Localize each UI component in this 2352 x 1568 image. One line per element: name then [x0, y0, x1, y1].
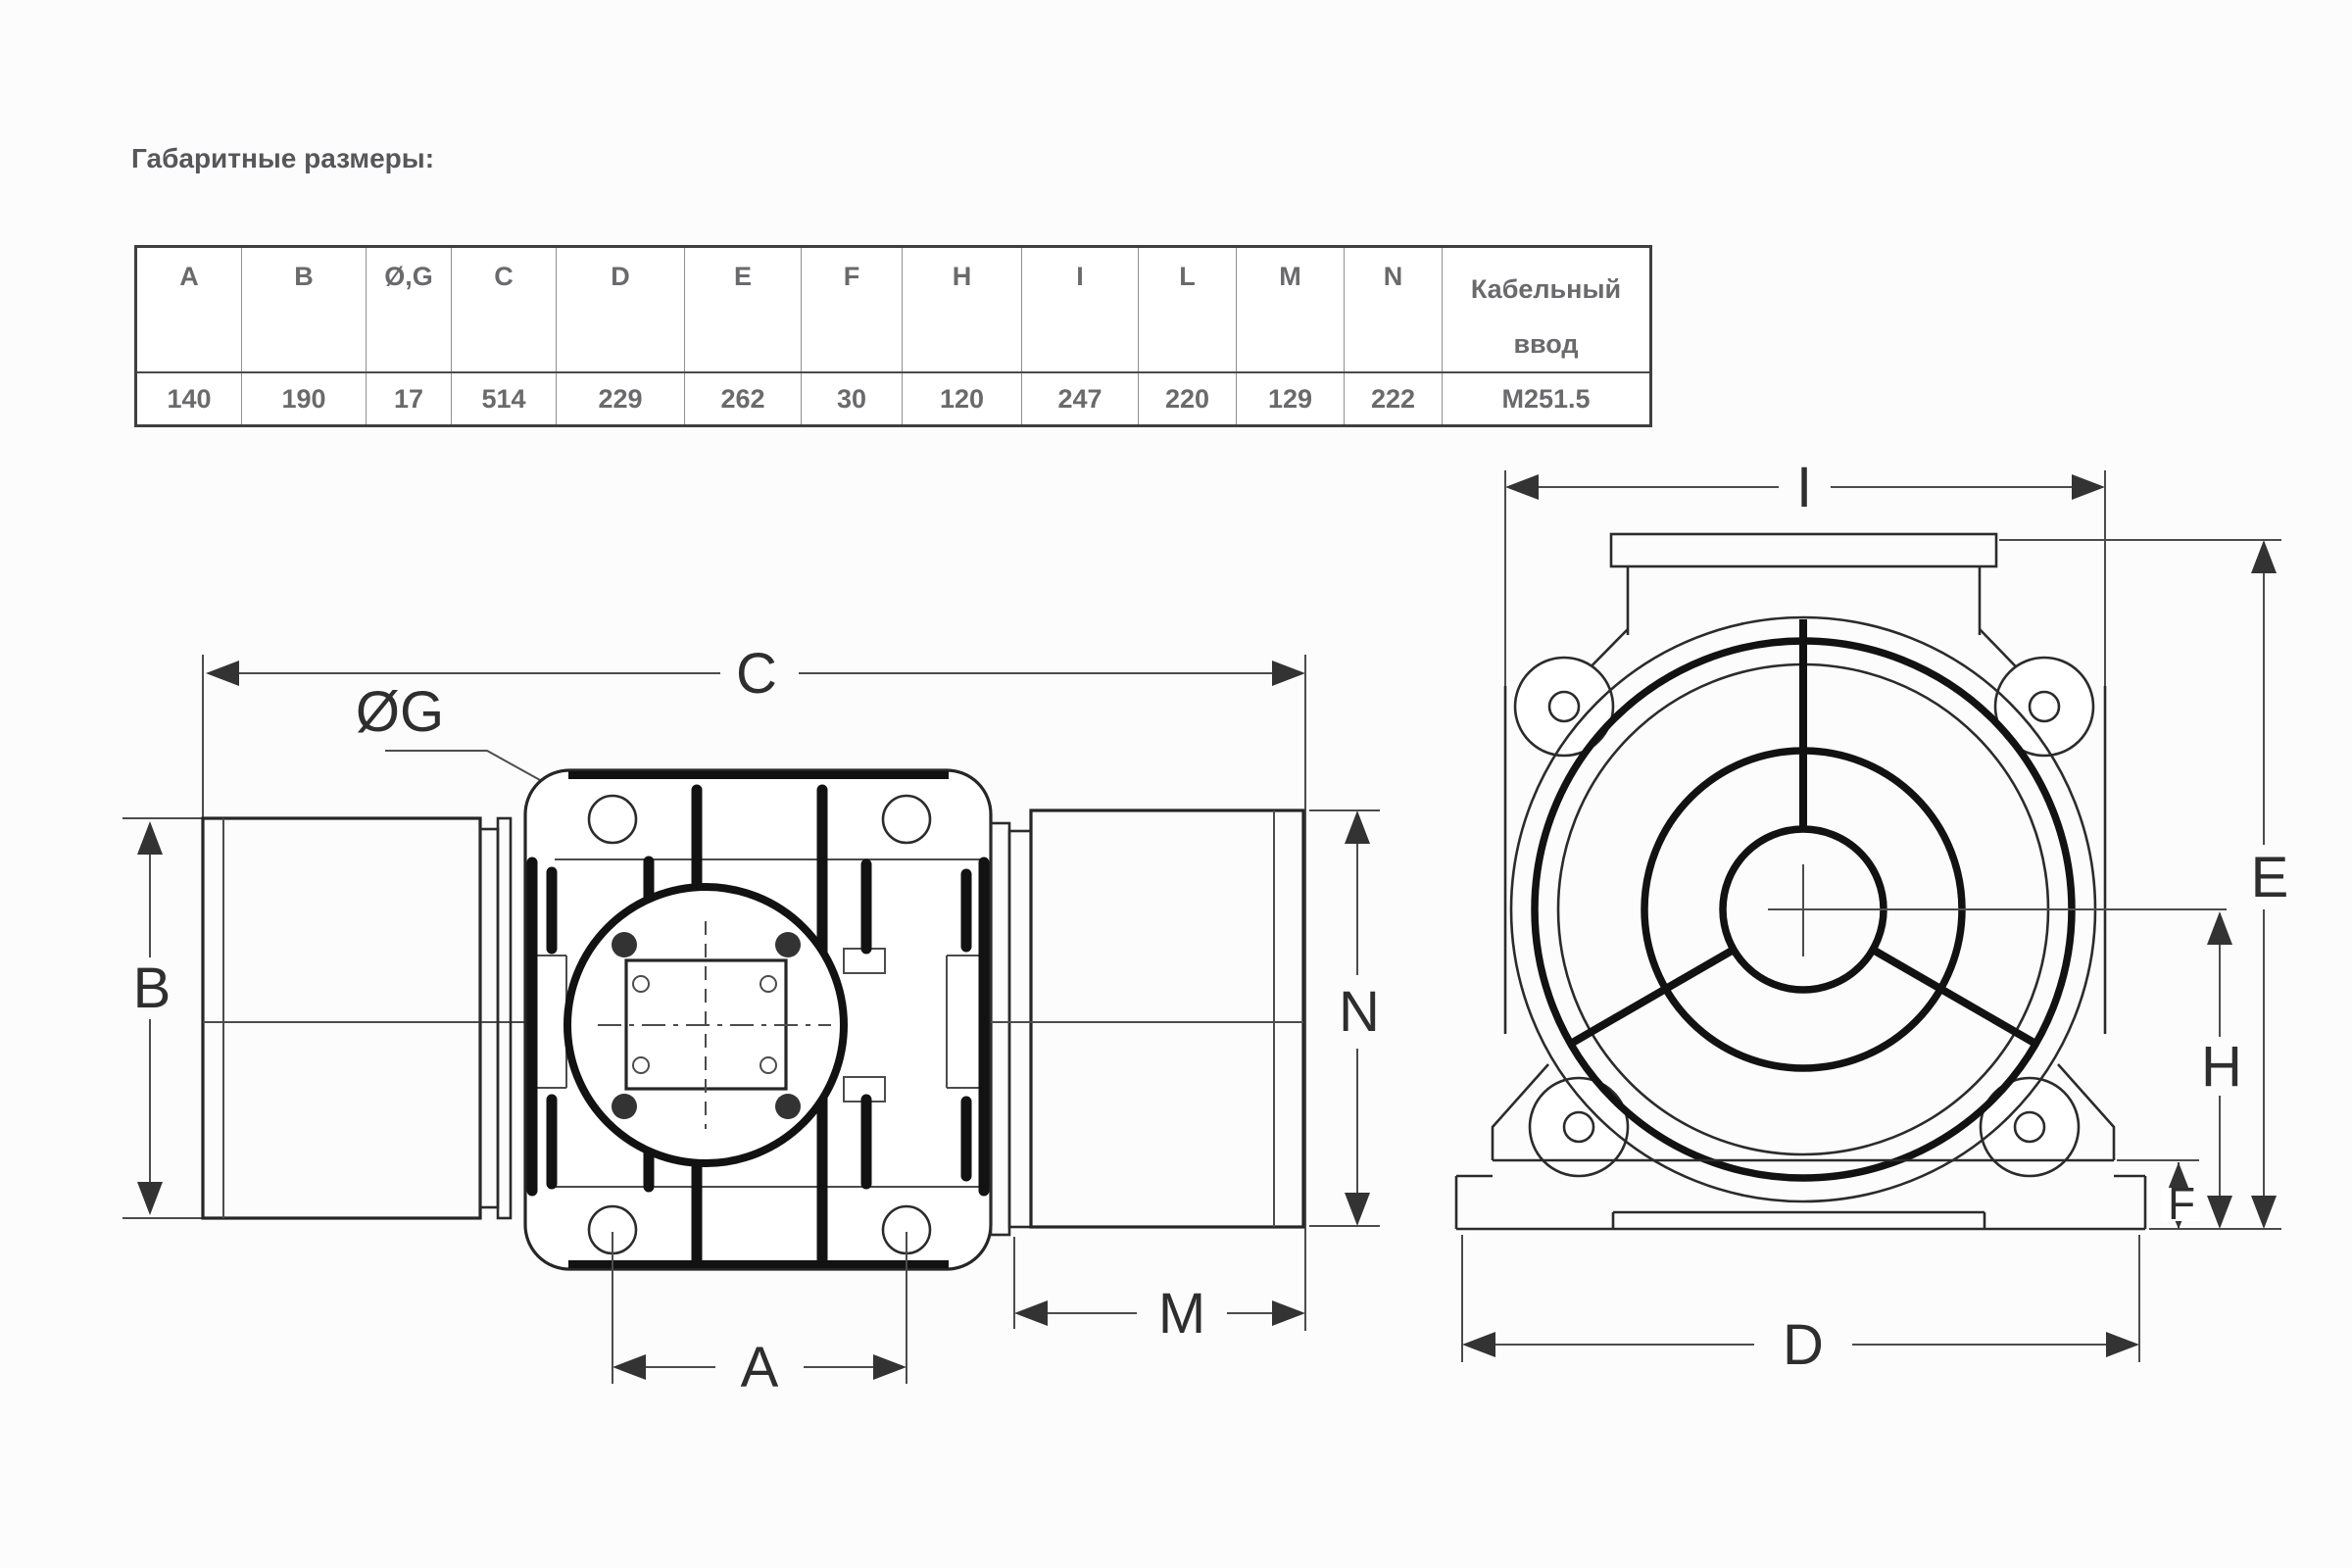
dim-label-h: H	[2201, 1035, 2242, 1099]
dim-label-i: I	[1796, 456, 1812, 519]
dim-label-m: M	[1158, 1282, 1205, 1346]
dim-label-b: B	[133, 956, 171, 1020]
motor-body-right	[991, 810, 1303, 1235]
dim-b: B	[122, 818, 203, 1218]
dim-h: H	[2201, 911, 2242, 1229]
dimension-drawings: C ØG B	[0, 0, 2352, 1568]
dim-label-e: E	[2251, 846, 2289, 909]
dim-label-c: C	[736, 642, 777, 706]
right-drawing-front-view: I	[1456, 456, 2288, 1377]
central-housing-plate	[525, 770, 991, 1269]
mount-hole	[589, 796, 636, 843]
mount-hole	[883, 796, 930, 843]
dim-m: M	[1014, 1237, 1305, 1346]
arrowhead-right	[1272, 661, 1305, 686]
arrowhead-left	[206, 661, 239, 686]
dim-f: F	[2117, 1160, 2200, 1229]
left-drawing-top-view: C ØG B	[122, 642, 1380, 1399]
dim-label-a: A	[741, 1336, 779, 1399]
dim-label-f: F	[2168, 1178, 2195, 1229]
dim-label-og: ØG	[356, 680, 444, 744]
motor-body-left	[203, 818, 525, 1218]
dim-n: N	[1309, 810, 1380, 1226]
center-lines	[1768, 864, 2227, 956]
dim-label-n: N	[1339, 980, 1380, 1044]
page: Габаритные размеры: A B Ø,G C D E F H I …	[0, 0, 2352, 1568]
dim-d: D	[1462, 1235, 2139, 1377]
dim-label-d: D	[1783, 1313, 1824, 1377]
